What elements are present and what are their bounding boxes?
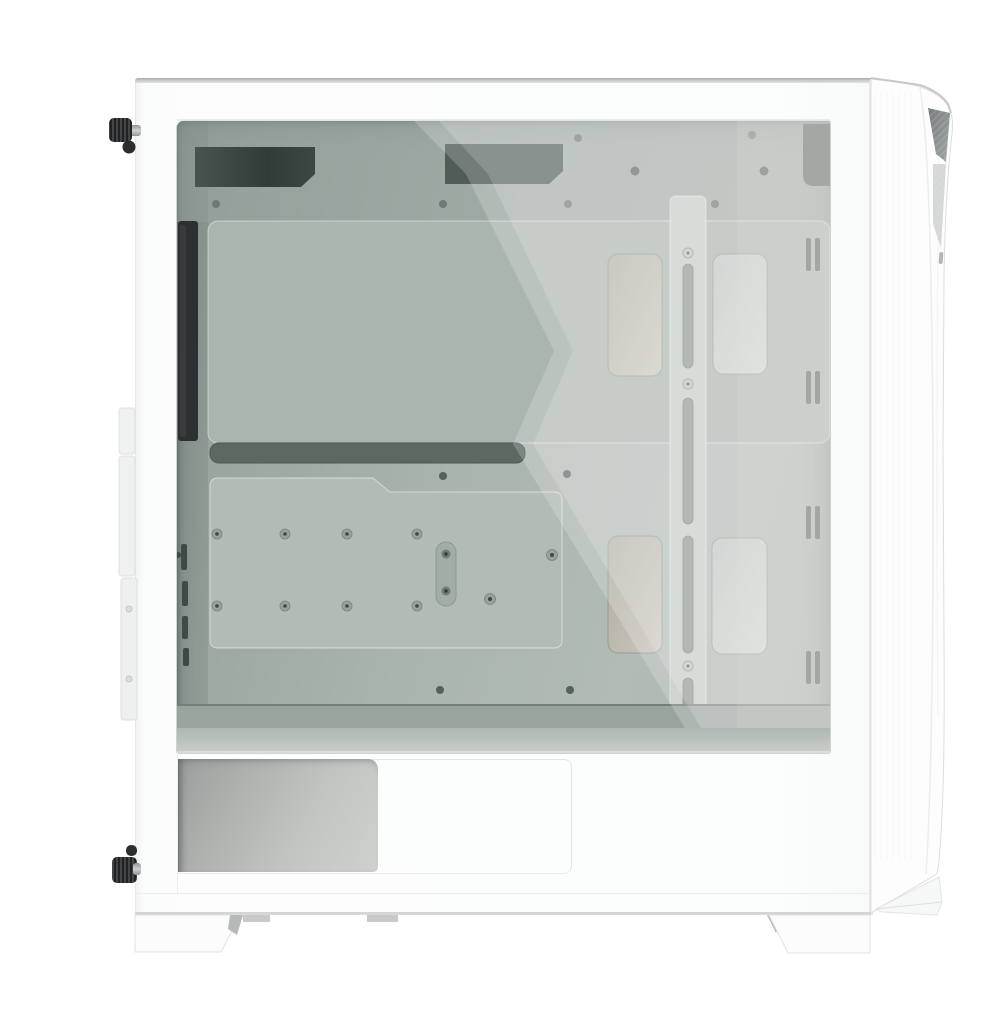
front-panel-striation — [873, 91, 915, 861]
foot-clip — [243, 915, 270, 922]
pc-case — [40, 16, 1000, 1016]
rear-foot — [135, 915, 240, 952]
front-panel-notch — [939, 252, 944, 264]
rear-tab — [119, 408, 135, 454]
rear-tab-screw-hole — [126, 676, 132, 682]
front-foot — [769, 915, 870, 953]
case-exterior-overlay — [40, 16, 1000, 1016]
rear-tab — [119, 456, 135, 576]
front-panel — [871, 78, 953, 915]
rear-tabs — [119, 408, 137, 720]
thumbscrew-bottom — [112, 845, 141, 883]
rear-tab — [121, 578, 137, 720]
bottom-edge-line — [135, 912, 871, 915]
case-bottom — [135, 912, 871, 953]
foot-clip — [367, 915, 398, 922]
thumbscrew-top — [109, 118, 141, 154]
rear-tab-screw-hole — [126, 606, 132, 612]
